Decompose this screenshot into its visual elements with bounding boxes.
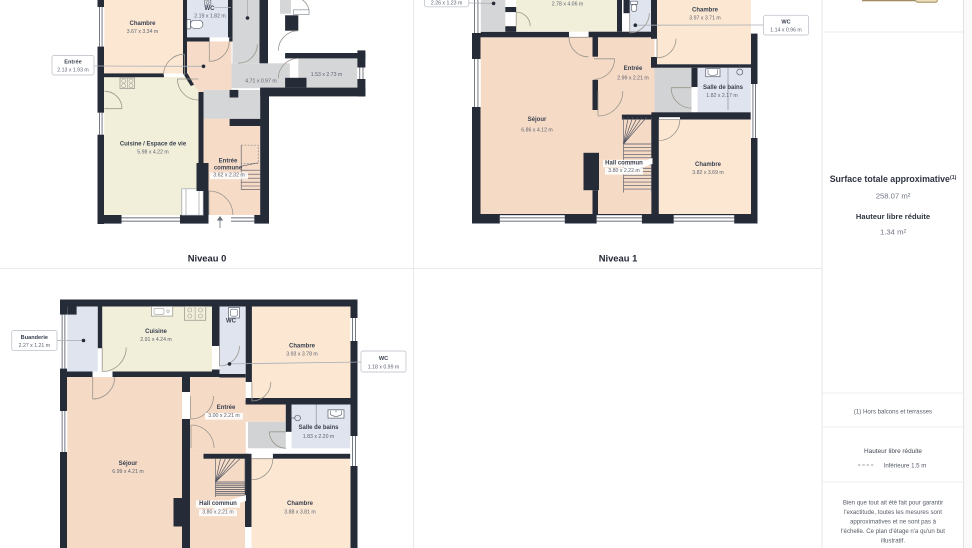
svg-text:Bien que tout ait été fait pou: Bien que tout ait été fait pour garantir — [843, 500, 943, 507]
svg-text:Niveau 0: Niveau 0 — [188, 253, 227, 264]
svg-text:Salle de bains: Salle de bains — [298, 425, 339, 431]
svg-text:1.82 x 2.17 m: 1.82 x 2.17 m — [706, 93, 737, 99]
svg-text:6.99 x 4.21 m: 6.99 x 4.21 m — [112, 469, 143, 475]
svg-text:4.71 x 0.97 m: 4.71 x 0.97 m — [245, 79, 276, 85]
svg-text:3.62 x 2.32 m: 3.62 x 2.32 m — [213, 173, 244, 179]
svg-text:WC: WC — [226, 319, 237, 325]
svg-text:Entrée: Entrée — [219, 159, 238, 165]
svg-text:Chambre: Chambre — [287, 501, 314, 507]
svg-text:Chambre: Chambre — [129, 21, 156, 27]
svg-text:3.80 x 2.21 m: 3.80 x 2.21 m — [202, 510, 233, 516]
svg-text:Chambre: Chambre — [692, 8, 719, 14]
svg-text:3.82 x 3.69 m: 3.82 x 3.69 m — [692, 170, 723, 176]
svg-text:Entrée: Entrée — [217, 405, 236, 411]
svg-text:6.86 x 4.12 m: 6.86 x 4.12 m — [521, 128, 552, 134]
svg-text:5.98 x 4.22 m: 5.98 x 4.22 m — [137, 150, 168, 156]
svg-text:commune: commune — [214, 166, 243, 172]
svg-text:Hauteur libre réduite: Hauteur libre réduite — [864, 448, 922, 455]
svg-text:3.00 x 2.21 m: 3.00 x 2.21 m — [208, 413, 239, 419]
svg-text:1.53 x 2.73 m: 1.53 x 2.73 m — [311, 72, 342, 78]
svg-text:Hauteur libre réduite: Hauteur libre réduite — [856, 212, 930, 221]
svg-text:Chambre: Chambre — [695, 162, 722, 168]
svg-text:Hall commun: Hall commun — [199, 501, 237, 507]
svg-text:illustratif.: illustratif. — [881, 538, 905, 545]
svg-text:Séjour: Séjour — [528, 117, 547, 123]
svg-text:Niveau 1: Niveau 1 — [599, 253, 638, 264]
svg-text:Buanderie: Buanderie — [21, 335, 48, 341]
svg-text:(1) Hors balcons et terrasses: (1) Hors balcons et terrasses — [854, 409, 932, 416]
svg-text:WC: WC — [781, 20, 790, 26]
svg-text:3.67 x 3.34 m: 3.67 x 3.34 m — [127, 29, 158, 35]
svg-text:3.88 x 3.81 m: 3.88 x 3.81 m — [284, 510, 315, 516]
svg-text:2.91 x 4.24 m: 2.91 x 4.24 m — [140, 337, 171, 343]
svg-text:2.78 x 4.06 m: 2.78 x 4.06 m — [552, 2, 583, 8]
svg-text:2.19 x 1.82 m: 2.19 x 1.82 m — [194, 13, 225, 19]
svg-text:l'exactitude, toutes les mesur: l'exactitude, toutes les mesures sont — [844, 509, 942, 516]
svg-text:Séjour: Séjour — [119, 461, 138, 467]
svg-text:Salle de bains: Salle de bains — [703, 85, 744, 91]
svg-text:Entrée: Entrée — [624, 66, 643, 72]
svg-text:1.34 m²: 1.34 m² — [880, 228, 907, 237]
svg-text:Entrée: Entrée — [64, 60, 81, 66]
svg-text:2.13 x 1.93 m: 2.13 x 1.93 m — [57, 68, 88, 74]
svg-text:1.83 x 2.20 m: 1.83 x 2.20 m — [303, 434, 334, 440]
svg-text:2.27 x 1.21 m: 2.27 x 1.21 m — [19, 343, 50, 349]
svg-text:Hall commun: Hall commun — [605, 161, 643, 167]
svg-text:3.80 x 2.22 m: 3.80 x 2.22 m — [608, 168, 639, 174]
svg-text:3.97 x 3.71 m: 3.97 x 3.71 m — [689, 16, 720, 22]
svg-text:Chambre: Chambre — [289, 344, 316, 350]
svg-text:1.18 x 0.99 m: 1.18 x 0.99 m — [368, 364, 399, 370]
svg-text:Surface totale approximative(1: Surface totale approximative(1) — [830, 174, 957, 184]
svg-text:approximatives et ne sont pas: approximatives et ne sont pas à — [850, 519, 937, 526]
svg-text:3.93 x 3.78 m: 3.93 x 3.78 m — [286, 352, 317, 358]
svg-text:1.14 x 0.96 m: 1.14 x 0.96 m — [770, 28, 801, 34]
svg-text:l'échelle. Ce plan d'étage n'a: l'échelle. Ce plan d'étage n'a qu'un but — [841, 528, 945, 535]
svg-text:Cuisine: Cuisine — [145, 329, 167, 335]
svg-text:WC: WC — [205, 6, 216, 12]
svg-text:2.26 x 1.23 m: 2.26 x 1.23 m — [431, 0, 462, 6]
svg-text:258.07 m²: 258.07 m² — [876, 192, 911, 201]
svg-text:Inférieure 1.5 m: Inférieure 1.5 m — [884, 463, 927, 470]
svg-text:Cuisine / Espace de vie: Cuisine / Espace de vie — [120, 141, 187, 147]
svg-text:2.99 x 2.21 m: 2.99 x 2.21 m — [617, 76, 648, 82]
svg-text:WC: WC — [379, 356, 388, 362]
